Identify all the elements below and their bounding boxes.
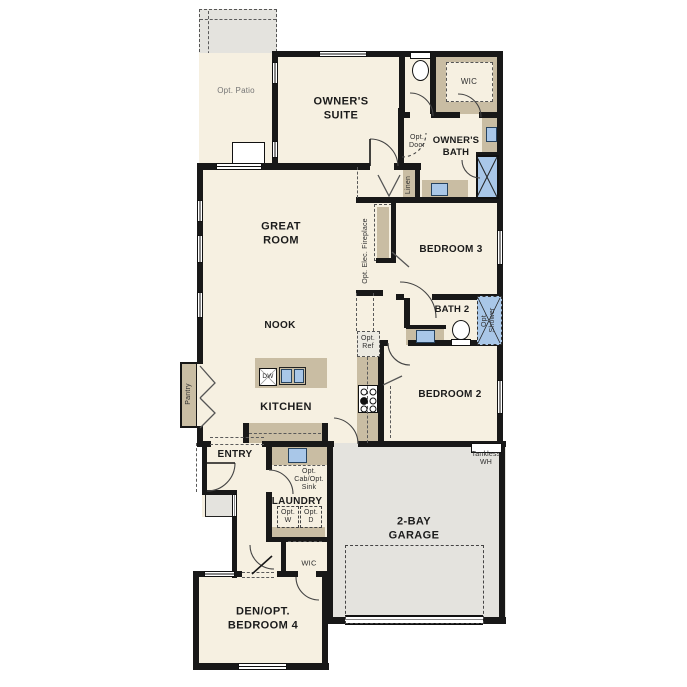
window (497, 380, 503, 414)
label-opt-washer: Opt. W (281, 509, 295, 525)
label-opt-door: Opt. Door (409, 134, 425, 150)
wall-segment (499, 447, 505, 624)
label-kitchen: KITCHEN (260, 401, 312, 415)
label-opt-ref: Opt. Ref (361, 335, 375, 351)
label-opt-dryer: Opt. D (304, 509, 318, 525)
shower (476, 155, 499, 199)
window (232, 494, 237, 517)
patio-slider-window (216, 163, 262, 170)
label-linen: Linen (405, 176, 413, 194)
wall-segment (391, 203, 396, 262)
wall-segment (430, 51, 436, 114)
window (204, 571, 235, 577)
wall-segment (415, 168, 420, 200)
bathroom-sink (431, 183, 448, 196)
label-opt-patio: Opt. Patio (217, 86, 255, 96)
room-break-dash (356, 293, 357, 331)
room-break-dash (357, 167, 358, 198)
wall-segment (356, 290, 383, 296)
wall-segment (481, 617, 506, 624)
window (319, 51, 367, 57)
label-nook: NOOK (264, 320, 295, 333)
laundry-lower-cabinet (272, 527, 325, 537)
label-laundry: LAUNDRY (272, 496, 323, 509)
wall-segment (322, 571, 328, 668)
wall-segment (479, 112, 503, 118)
label-dishwasher: DW (262, 373, 273, 381)
roofline-dash (196, 443, 197, 492)
den-opening-dash (242, 577, 274, 578)
wall-segment (399, 112, 410, 118)
laundry-sink (288, 448, 307, 463)
wall-segment (281, 540, 286, 573)
window (238, 663, 287, 670)
label-tankless-wh: Tankless WH (472, 451, 501, 467)
fireplace (377, 207, 389, 258)
window (497, 230, 503, 265)
label-garage: 2-BAY GARAGE (389, 515, 440, 543)
wall-segment (273, 51, 503, 57)
patio-roofline-dash (200, 19, 276, 20)
wall-segment (322, 423, 328, 443)
label-opt-cab-sink: Opt. Cab/Opt. Sink (294, 468, 324, 492)
window (272, 62, 278, 84)
counter-dash (249, 433, 321, 434)
toilet (410, 52, 431, 59)
wall-segment (399, 51, 405, 114)
room-break-dash (373, 293, 374, 331)
label-entry: ENTRY (217, 449, 252, 462)
label-bedroom2: BEDROOM 2 (418, 389, 481, 402)
wall-segment (406, 325, 446, 329)
bathroom-sink (486, 127, 497, 142)
label-owners-suite: OWNER'S SUITE (314, 95, 369, 123)
label-bedroom4-wic: WIC (301, 558, 316, 567)
label-pantry: Pantry (185, 383, 193, 404)
cased-opening-dash (210, 437, 264, 438)
side-yard (202, 517, 232, 573)
window (197, 235, 203, 263)
label-bedroom3: BEDROOM 3 (419, 244, 482, 257)
window (197, 292, 203, 318)
range (358, 385, 378, 413)
wall-segment (202, 445, 207, 494)
counter-dash (367, 357, 368, 443)
cased-opening-dash (210, 444, 264, 445)
label-opt-elec-fireplace: Opt. Elec. Fireplace (362, 218, 370, 283)
toilet (452, 320, 470, 340)
label-bath2: BATH 2 (435, 304, 470, 316)
garage-parking-outline (345, 545, 484, 624)
closet-rod-dash (390, 386, 391, 438)
window (197, 200, 203, 222)
counter-dash (274, 465, 325, 466)
label-owners-bath: OWNER'S BATH (433, 135, 479, 159)
wall-segment (404, 298, 410, 328)
wall-segment (202, 490, 236, 495)
den-opening-dash (242, 572, 274, 573)
wic-opening-dash (288, 541, 322, 542)
wall-segment (193, 571, 199, 670)
label-great-room: GREAT ROOM (261, 220, 301, 248)
toilet (451, 339, 471, 346)
wall-segment (266, 443, 272, 470)
wall-segment (396, 294, 404, 300)
label-owners-wic: WIC (461, 77, 477, 87)
pantry-opening (197, 364, 203, 426)
window (272, 141, 278, 158)
wall-segment (272, 163, 370, 170)
wall-segment (376, 258, 396, 263)
bathroom-sink (416, 330, 435, 343)
floor-plan: Opt. Patio OWNER'S SUITE WIC OWNER'S BAT… (0, 0, 687, 687)
label-opt-shower: Opt. Shower (481, 308, 497, 333)
kitchen-sink-basin (294, 369, 304, 383)
front-porch (205, 494, 233, 517)
kitchen-sink-basin (281, 369, 292, 383)
toilet (412, 60, 429, 81)
label-den: DEN/OPT. BEDROOM 4 (228, 605, 298, 633)
